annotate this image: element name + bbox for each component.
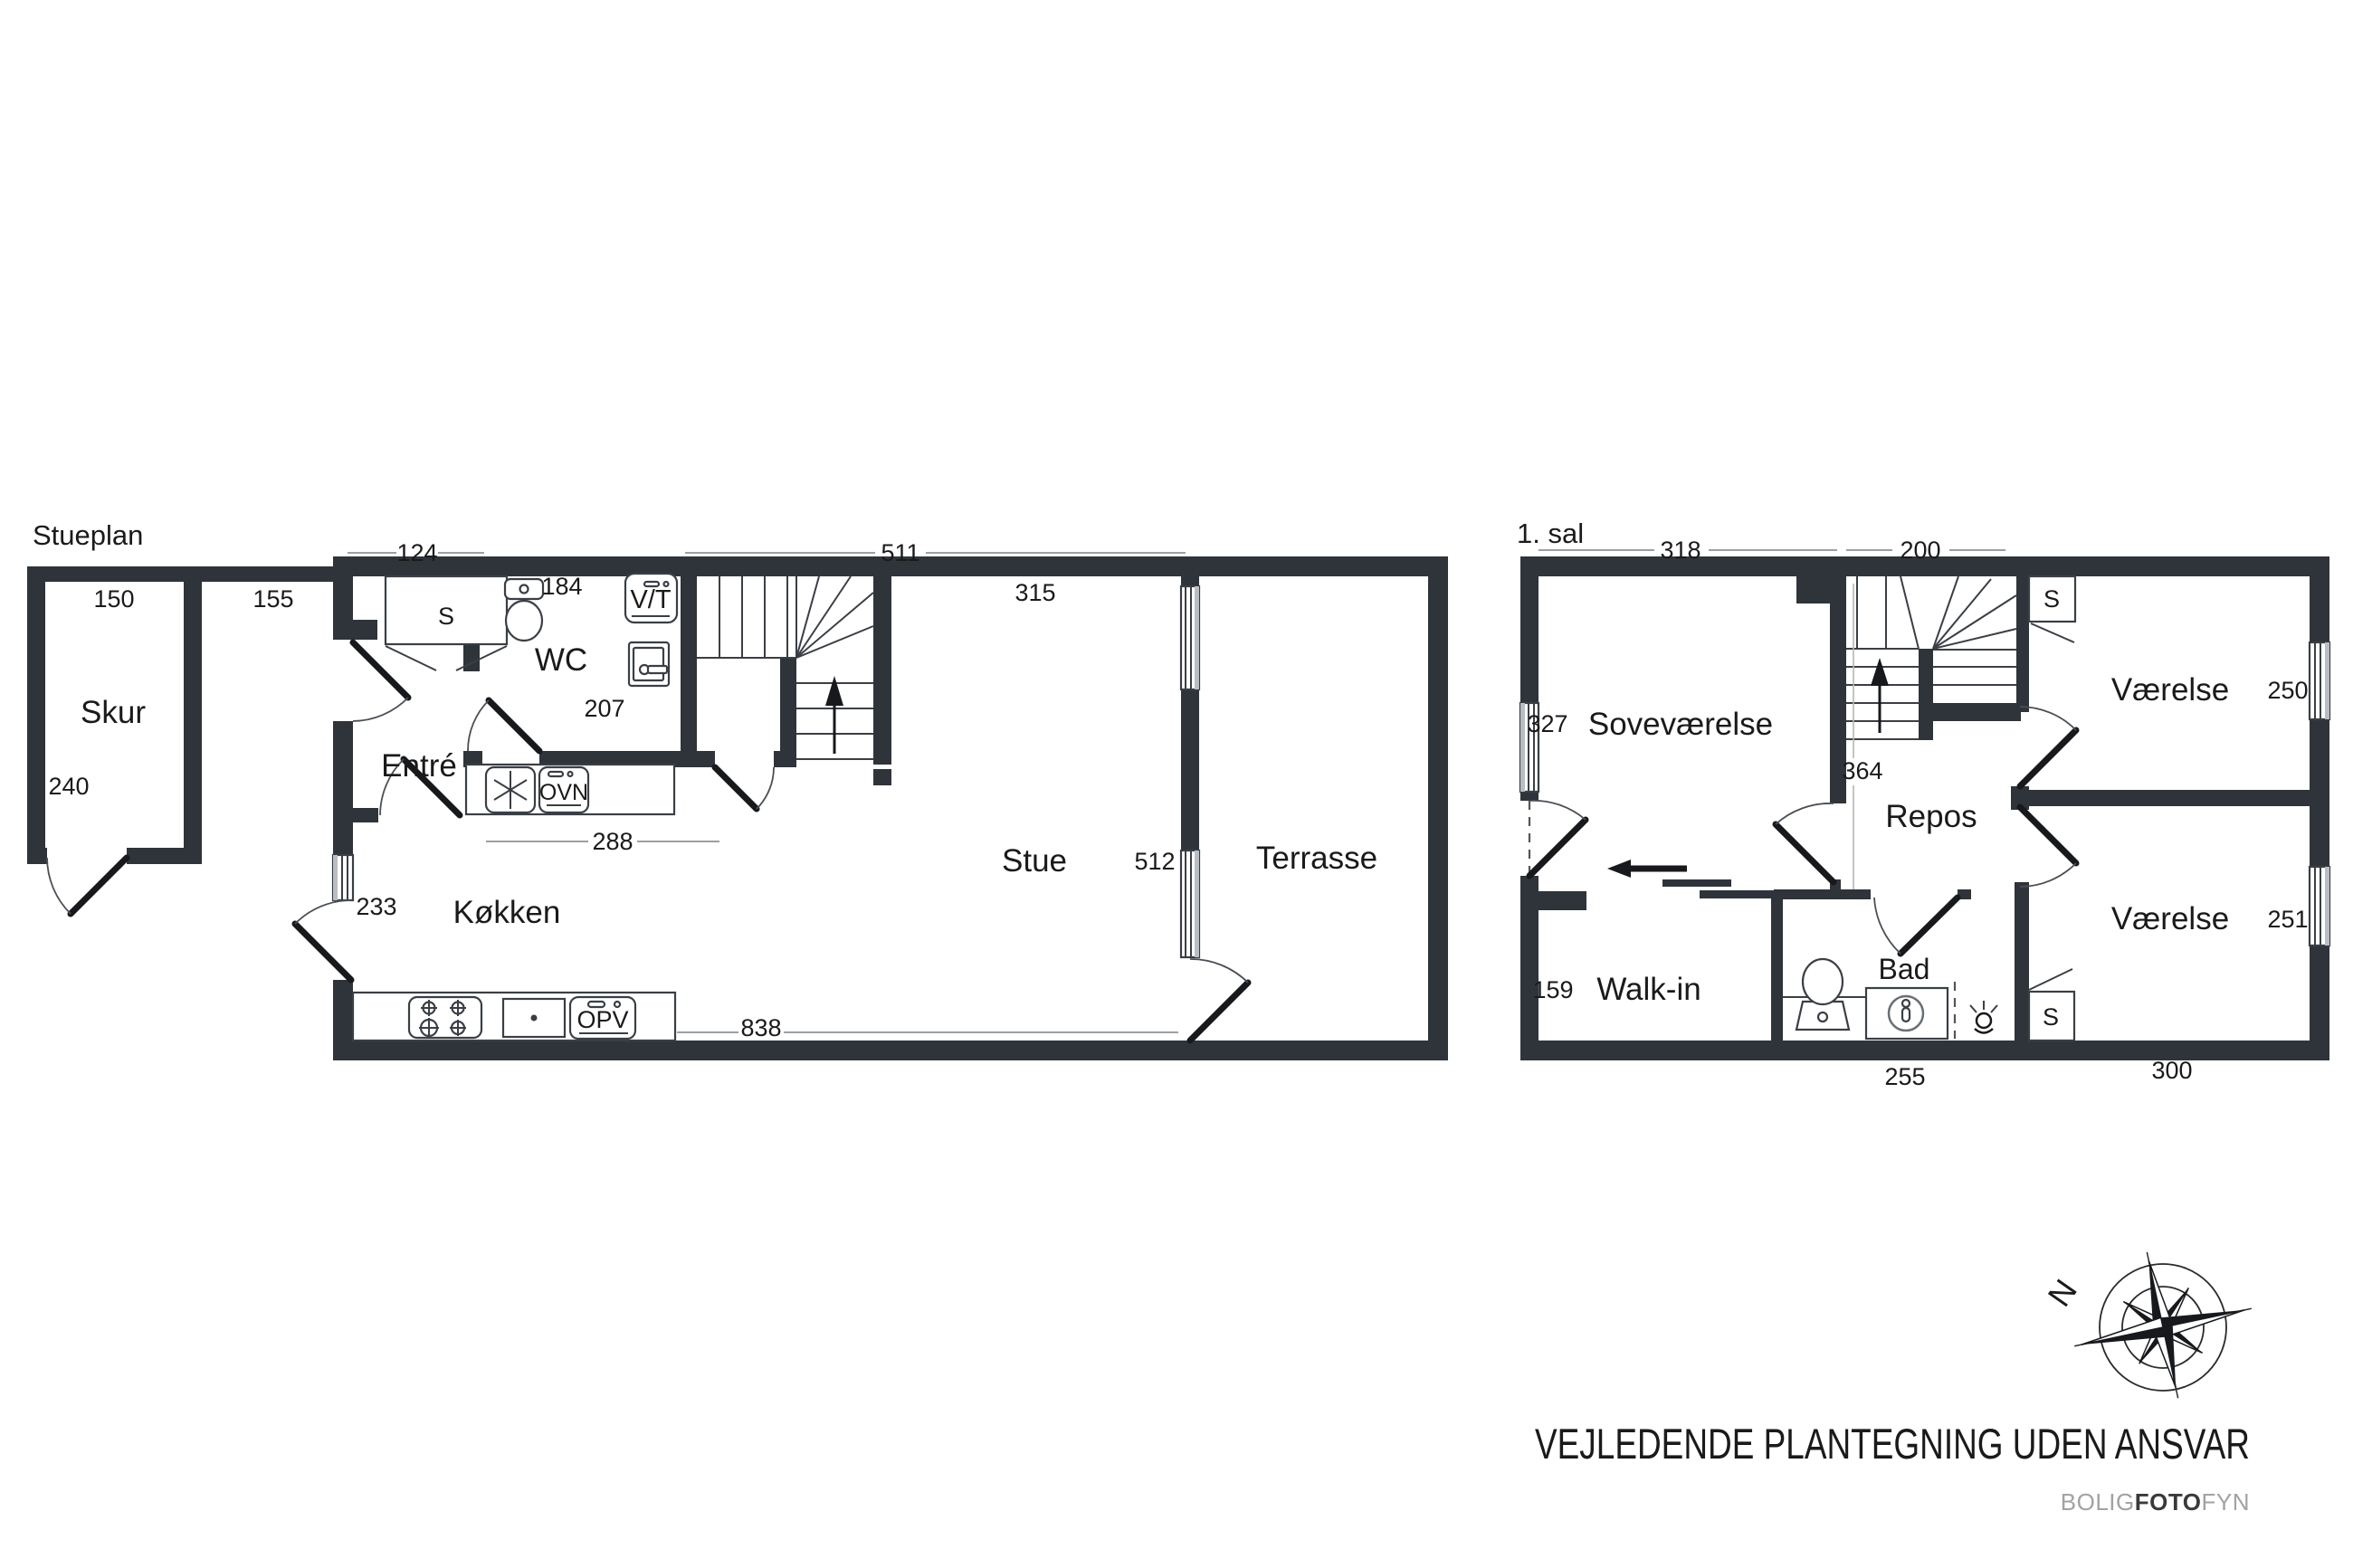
- compass-north-label: N: [2041, 1272, 2084, 1313]
- dim-838: 838: [740, 1014, 781, 1041]
- first-floor-title: 1. sal: [1517, 518, 1584, 549]
- fridge-icon: [486, 767, 535, 813]
- brand-fyn: FYN: [2202, 1488, 2251, 1516]
- dim-315: 315: [1015, 579, 1055, 606]
- door-wc: [468, 700, 539, 751]
- door-room251: [2020, 807, 2076, 887]
- room-label-stue: Stue: [1002, 843, 1067, 879]
- room-label-kokken: Køkken: [453, 895, 561, 930]
- dim-318: 318: [1660, 537, 1700, 564]
- room-label-vaerelse-top: Værelse: [2111, 672, 2229, 708]
- door-bathroom: [1874, 898, 1958, 954]
- dim-255: 255: [1884, 1063, 1925, 1090]
- room-label-repos: Repos: [1885, 799, 1977, 834]
- first-floor-plan: 1. sal: [1517, 518, 2329, 1090]
- disclaimer-text: VEJLEDENDE PLANTEGNING UDEN ANSVAR: [1535, 1420, 2250, 1468]
- dim-512: 512: [1134, 848, 1175, 875]
- dishwasher-icon: OPV: [570, 997, 635, 1039]
- dim-233: 233: [356, 893, 396, 920]
- kitchen-counter-lower: OPV: [353, 993, 675, 1041]
- washer-dryer-icon: V/T: [625, 574, 677, 622]
- closet-label: S: [438, 603, 454, 630]
- sliding-door-walkin: [1607, 860, 1777, 898]
- door-understairs-closet: [715, 767, 774, 809]
- dim-200: 200: [1900, 537, 1940, 564]
- closet-s-bottom: S: [2029, 969, 2074, 1041]
- closet-s-entre: S: [386, 576, 507, 670]
- brand-foto: FOTO: [2135, 1488, 2202, 1516]
- compass-rose-icon: N: [2041, 1233, 2267, 1417]
- dim-327: 327: [1527, 710, 1567, 737]
- walls-ground: [27, 556, 1448, 1060]
- window-kitchen-left: [333, 855, 353, 900]
- room-label-walkin: Walk-in: [1596, 972, 1700, 1007]
- window-room251: [2310, 867, 2329, 946]
- dim-240: 240: [48, 773, 89, 800]
- door-front-entrance: [353, 642, 408, 721]
- dim-511: 511: [881, 539, 919, 566]
- room-label-skur: Skur: [81, 695, 146, 730]
- room-label-sovevaerelse: Soveværelse: [1588, 707, 1773, 742]
- brand-bolig: BOLIG: [2061, 1488, 2135, 1516]
- room-label-wc: WC: [535, 642, 587, 678]
- door-french-balcony: [1529, 801, 1586, 876]
- door-kitchen-exterior: [295, 900, 351, 980]
- kitchen-counter-upper: OVN: [466, 765, 674, 814]
- brand-logo: BOLIGFOTOFYN: [2061, 1488, 2250, 1516]
- dim-250: 250: [2267, 677, 2308, 704]
- closet-top-label: S: [2043, 585, 2060, 613]
- stairs-up-arrow: [825, 676, 843, 754]
- room-label-bad: Bad: [1879, 953, 1930, 985]
- toilet-icon-wc: [505, 579, 543, 641]
- dim-300: 300: [2151, 1057, 2192, 1084]
- closet-s-top: S: [2029, 576, 2075, 642]
- room-label-entre: Entré: [381, 748, 457, 784]
- slide-direction-arrow: [1607, 860, 1687, 878]
- dim-159: 159: [1532, 976, 1573, 1003]
- window-room250: [2310, 642, 2329, 719]
- dim-150: 150: [93, 585, 134, 613]
- dim-124: 124: [396, 539, 437, 566]
- vanity-sink-icon: [1866, 988, 1948, 1039]
- washer-label: V/T: [630, 585, 671, 614]
- room-label-vaerelse-bottom: Værelse: [2111, 901, 2229, 936]
- window-stue-lower: [1181, 851, 1199, 957]
- footer: VEJLEDENDE PLANTEGNING UDEN ANSVAR BOLIG…: [1535, 1420, 2250, 1516]
- door-terrace: [1190, 959, 1248, 1041]
- ground-floor-title: Stueplan: [33, 519, 143, 551]
- stove-icon: [409, 997, 481, 1038]
- shower-icon: [1970, 1001, 1997, 1033]
- dim-184: 184: [541, 573, 582, 600]
- oven-label: OVN: [539, 780, 588, 805]
- toilet-icon-bad: [1796, 959, 1849, 1030]
- floorplan-page: Stueplan: [0, 0, 2353, 1568]
- dim-207: 207: [584, 695, 624, 722]
- dim-364: 364: [1842, 757, 1882, 784]
- door-bedroom-repos: [1776, 803, 1834, 882]
- room-label-terrasse: Terrasse: [1256, 841, 1377, 876]
- sink-icon-wc: [629, 642, 669, 686]
- dishwasher-label: OPV: [576, 1006, 628, 1033]
- window-stue-upper: [1181, 586, 1199, 689]
- dim-251: 251: [2267, 906, 2308, 933]
- oven-icon: OVN: [539, 767, 588, 813]
- sink-icon-kitchen: [503, 999, 565, 1037]
- dim-288: 288: [592, 828, 633, 855]
- dim-155: 155: [252, 585, 293, 613]
- closet-bottom-label: S: [2043, 1003, 2059, 1031]
- ground-floor-plan: Stueplan: [27, 519, 1448, 1060]
- door-room250: [2020, 707, 2076, 786]
- door-skur: [47, 858, 127, 914]
